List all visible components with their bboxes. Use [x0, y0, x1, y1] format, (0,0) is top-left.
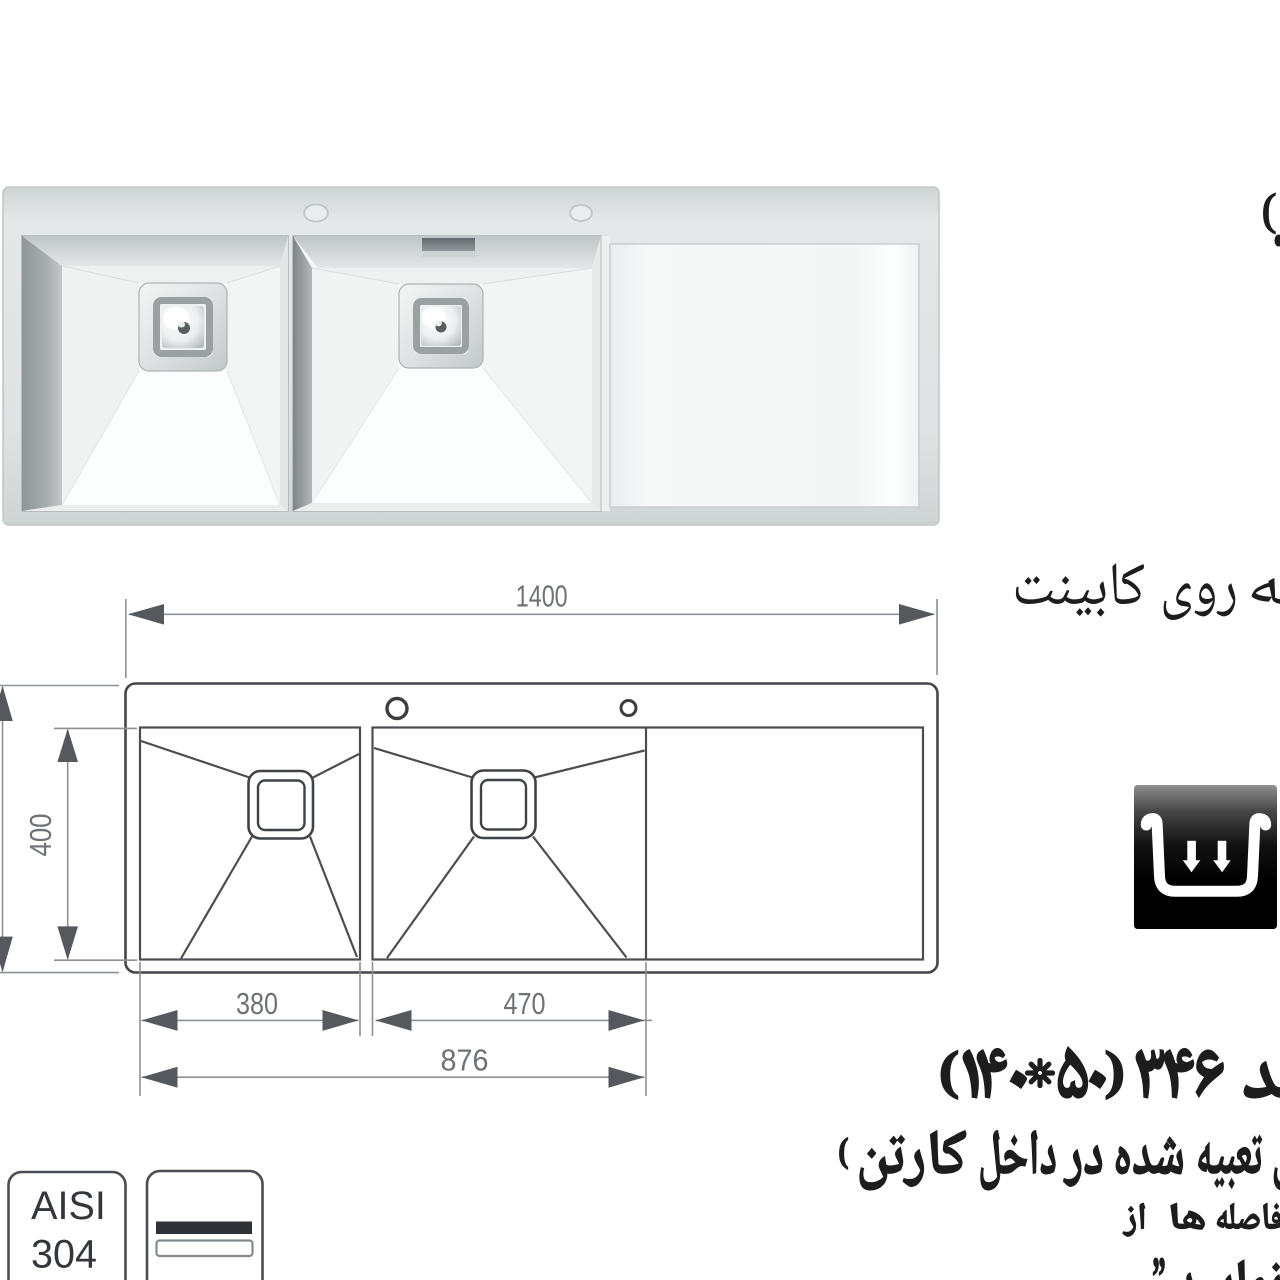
- svg-text:400: 400: [23, 814, 58, 857]
- svg-text:1400: 1400: [516, 579, 568, 614]
- svg-text:AISI: AISI: [31, 1184, 106, 1228]
- svg-text:304: 304: [31, 1233, 97, 1277]
- svg-text:876: 876: [441, 1043, 489, 1078]
- svg-text:380: 380: [236, 986, 278, 1021]
- svg-text:470: 470: [504, 986, 546, 1021]
